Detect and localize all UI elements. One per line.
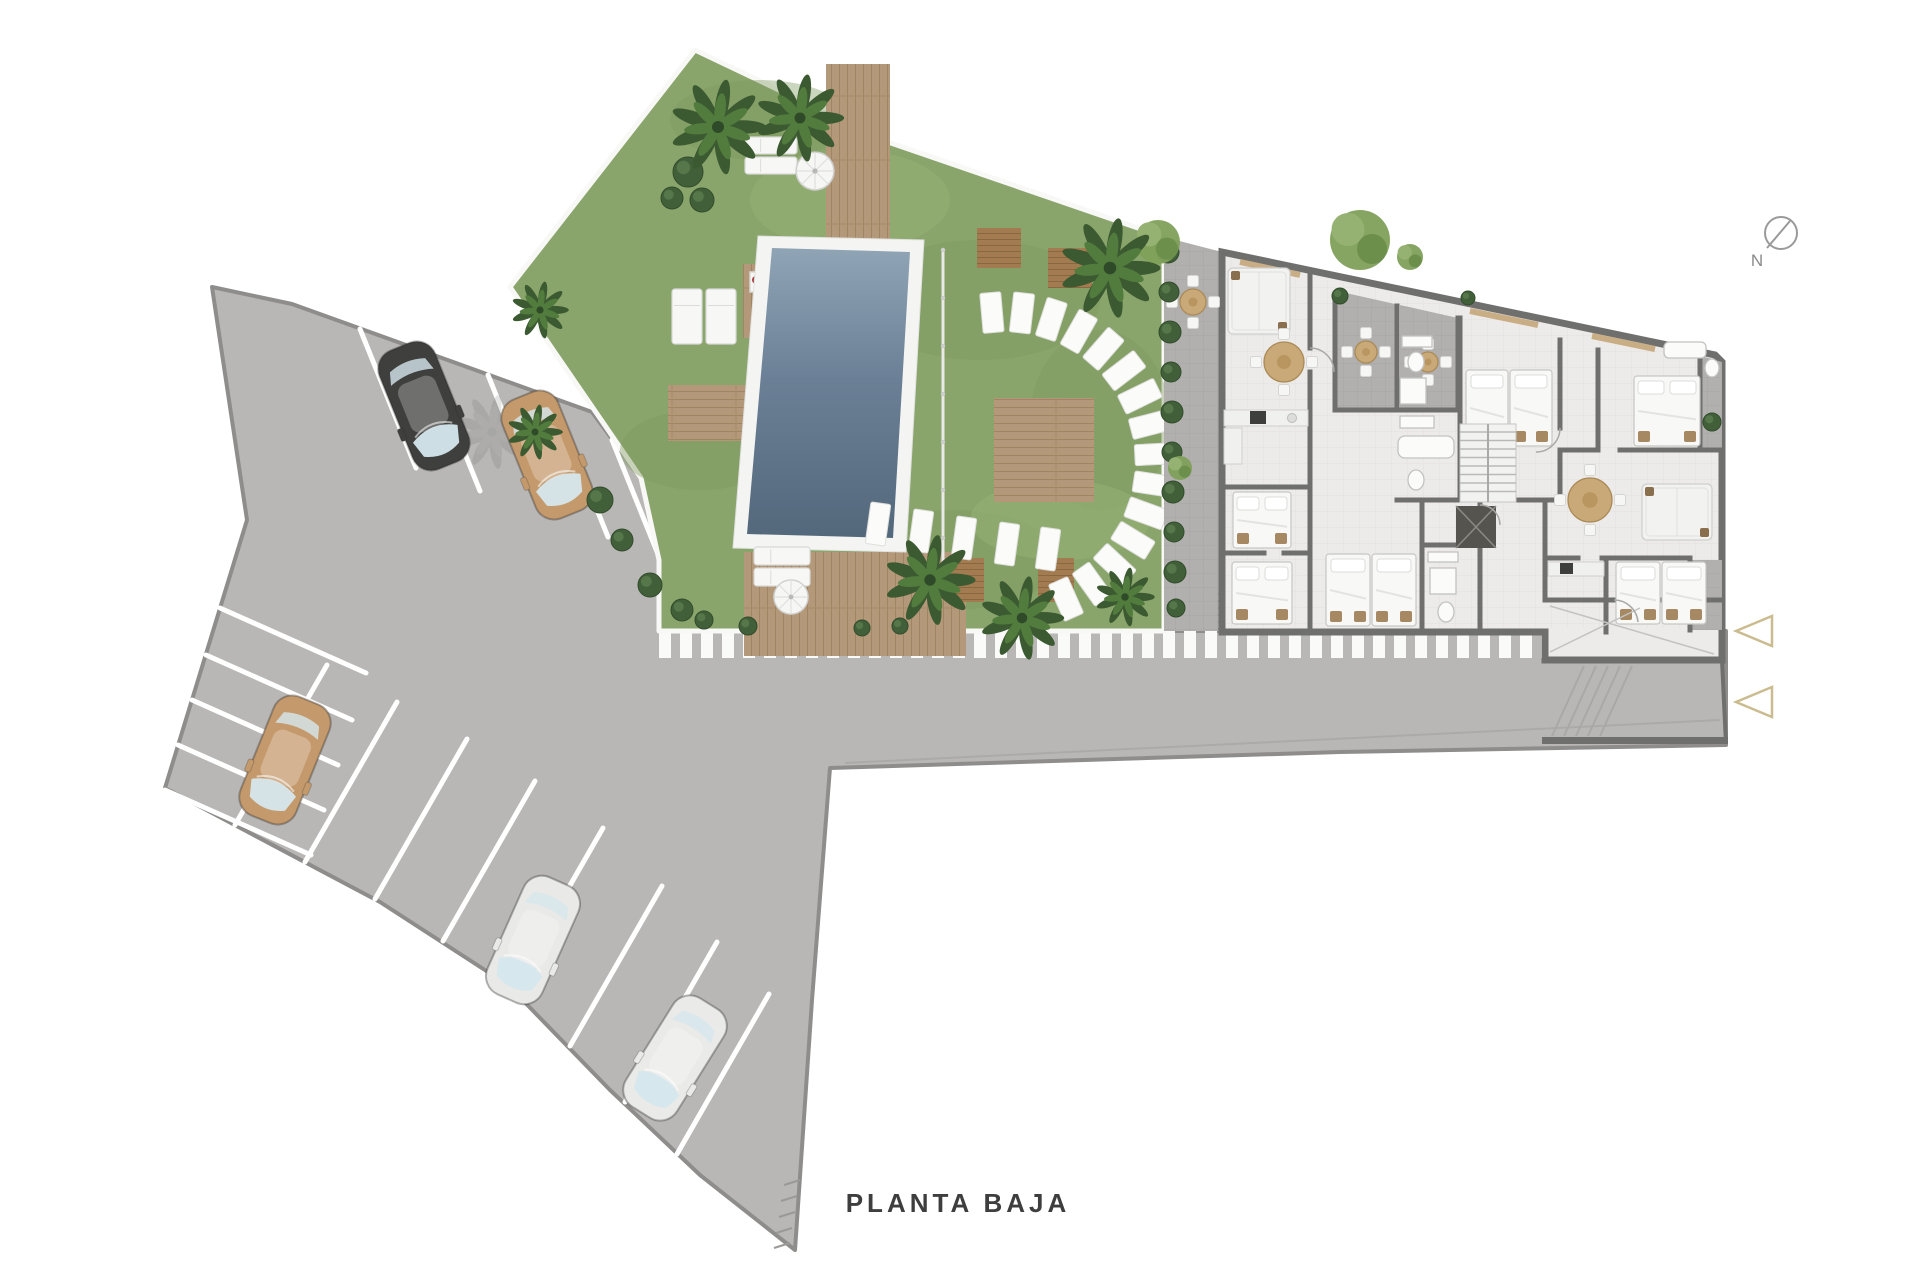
deck-east-platform (994, 398, 1094, 502)
swimming-pool (733, 236, 924, 552)
kitchen-2 (1548, 562, 1604, 576)
ramp-wall (1542, 737, 1728, 744)
deck-walkway (826, 64, 890, 250)
bed-icon (1326, 554, 1370, 626)
stove-icon (1560, 563, 1573, 574)
sofa-icon (1228, 268, 1290, 334)
entrance-arrow-icon (1736, 687, 1772, 717)
entrance-arrows (1736, 616, 1772, 717)
elevator (1456, 506, 1496, 548)
bed-icon (1616, 562, 1660, 624)
north-label: N (1751, 251, 1763, 270)
north-compass: N (1751, 217, 1797, 270)
tree-icon (1330, 210, 1390, 270)
bed-icon (1662, 562, 1706, 624)
pool-water (747, 248, 910, 538)
stove-icon (1250, 411, 1266, 424)
stairs (1460, 424, 1516, 502)
sink-icon (1288, 414, 1297, 423)
bed-icon (1372, 554, 1416, 626)
site-plan-page: N PLANTA BAJA (0, 0, 1920, 1280)
sofa-icon (1642, 484, 1712, 540)
tree-icon (1168, 456, 1192, 480)
entrance-arrow-icon (1736, 616, 1772, 646)
tree-icon (1397, 244, 1423, 270)
bed-icon (1233, 492, 1291, 548)
bed-icon (1232, 562, 1292, 624)
pergola-bench (977, 228, 1021, 268)
compass-needle-icon (1767, 221, 1790, 248)
ground-floor-plan: N (0, 0, 1920, 1280)
bed-icon (1634, 376, 1700, 446)
building-floor-plan (1167, 252, 1723, 660)
plan-caption: PLANTA BAJA (846, 1188, 1071, 1219)
